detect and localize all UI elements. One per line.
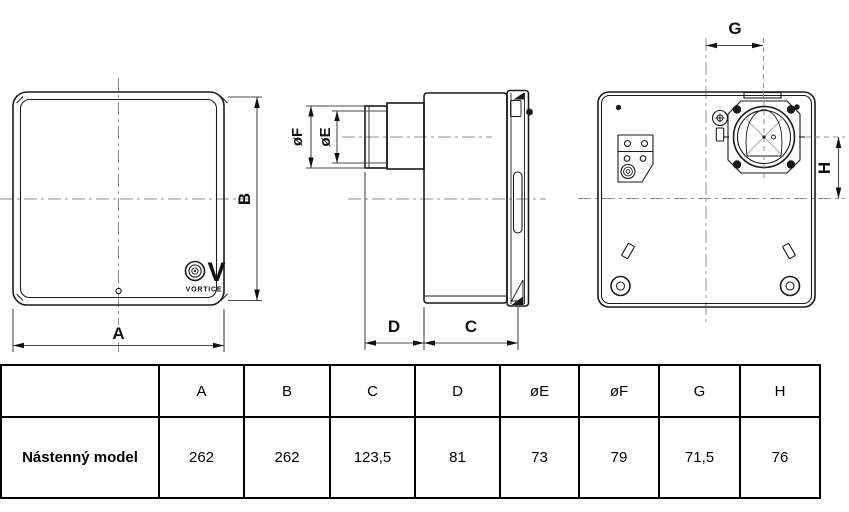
dim-label-a: A xyxy=(112,324,124,343)
table-header-c: C xyxy=(330,365,415,417)
flange-screw xyxy=(787,105,795,113)
dim-label-h: H xyxy=(815,162,834,174)
value-h: 76 xyxy=(740,417,820,498)
duct-small-hole xyxy=(772,135,776,139)
dimensions-table: A B C D øE øF G H Nástenný model 262 262… xyxy=(0,364,821,499)
dim-label-c: C xyxy=(465,317,477,336)
table-header-empty xyxy=(1,365,159,417)
dim-label-g: G xyxy=(728,19,741,38)
cover-slot xyxy=(514,172,523,233)
table-header-g: G xyxy=(659,365,740,417)
logo-v-glyph: V xyxy=(207,257,225,287)
table-header-row: A B C D øE øF G H xyxy=(1,365,820,417)
front-view-drawing: V VORTICE A B xyxy=(0,78,262,352)
technical-drawing: V VORTICE A B xyxy=(0,0,849,362)
value-oe: 73 xyxy=(500,417,579,498)
keyhole-screw xyxy=(713,111,728,142)
terminal-bracket xyxy=(618,135,653,182)
value-b: 262 xyxy=(244,417,330,498)
value-g: 71,5 xyxy=(659,417,740,498)
cover-clip-knob xyxy=(526,109,533,116)
duct-outlet xyxy=(723,101,805,180)
table-row: Nástenný model 262 262 123,5 81 73 79 71… xyxy=(1,417,820,498)
fan-body xyxy=(424,93,507,303)
dim-label-oe: øE xyxy=(317,127,334,146)
vortice-logo-icon: V VORTICE xyxy=(186,257,226,294)
flange-screw xyxy=(787,160,795,168)
dimension-g: G xyxy=(706,19,764,101)
back-view-drawing: G H xyxy=(578,19,845,325)
table-header-a: A xyxy=(159,365,244,417)
dimension-c: C xyxy=(424,307,518,350)
value-a: 262 xyxy=(159,417,244,498)
logo-brand-text: VORTICE xyxy=(186,287,223,294)
mount-hole-left xyxy=(611,277,630,296)
value-of: 79 xyxy=(579,417,659,498)
table-header-oe: øE xyxy=(500,365,579,417)
table-header-of: øF xyxy=(579,365,659,417)
side-view-drawing: øF øE D C xyxy=(289,91,546,351)
front-cover-edge xyxy=(507,91,533,307)
dim-label-b: B xyxy=(235,193,254,205)
dim-label-d: D xyxy=(388,317,400,336)
model-label: Nástenný model xyxy=(1,417,159,498)
back-hole-top-left xyxy=(616,105,621,110)
mount-hole-right xyxy=(781,277,800,296)
keyhole-slot-left xyxy=(621,243,634,259)
front-panel-hole xyxy=(116,288,121,293)
table-header-d: D xyxy=(415,365,500,417)
flange-screw xyxy=(733,160,741,168)
dim-label-of: øF xyxy=(289,128,306,146)
value-d: 81 xyxy=(415,417,500,498)
value-c: 123,5 xyxy=(330,417,415,498)
table-header-h: H xyxy=(740,365,820,417)
duct-spigot-tube xyxy=(387,103,424,169)
flange-screw xyxy=(733,105,741,113)
keyhole-slot-right xyxy=(782,243,795,259)
table-header-b: B xyxy=(244,365,330,417)
dimension-a: A xyxy=(13,309,224,352)
